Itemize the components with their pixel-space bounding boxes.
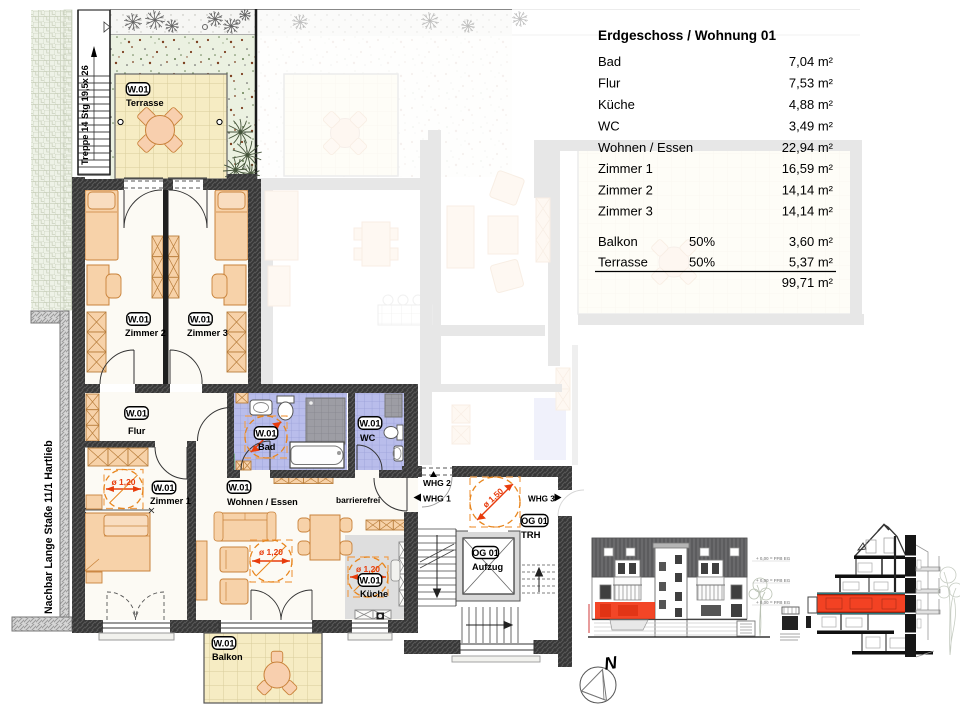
svg-text:W.01: W.01 [255,429,276,439]
svg-text:Wohnen / Essen: Wohnen / Essen [227,497,298,507]
svg-text:99,71 m²: 99,71 m² [782,275,834,290]
svg-text:7,04 m²: 7,04 m² [789,54,834,69]
svg-text:+ 0,00 = FFB EG: + 0,00 = FFB EG [756,556,791,561]
svg-text:3,49 m²: 3,49 m² [789,119,834,134]
svg-text:WHG 3: WHG 3 [528,495,555,504]
svg-text:Wohnen / Essen: Wohnen / Essen [598,140,693,155]
svg-text:7,53 m²: 7,53 m² [789,76,834,91]
svg-text:14,14 m²: 14,14 m² [782,183,834,198]
svg-text:Terrasse: Terrasse [598,255,648,270]
svg-text:W.01: W.01 [126,409,147,419]
svg-text:W.01: W.01 [359,419,380,429]
svg-text:Bad: Bad [598,54,621,69]
svg-text:WC: WC [360,433,376,443]
svg-text:3,60 m²: 3,60 m² [789,234,834,249]
svg-text:barrierefrei: barrierefrei [336,495,380,505]
svg-text:WHG 2: WHG 2 [423,478,451,488]
svg-text:Küche: Küche [360,589,388,599]
svg-text:ø 1,20: ø 1,20 [356,564,380,574]
svg-text:Treppe 14 Stg 19,5x 26: Treppe 14 Stg 19,5x 26 [80,65,90,165]
svg-text:Zimmer 3: Zimmer 3 [187,328,228,338]
svg-text:50%: 50% [689,255,715,270]
svg-text:OG 01: OG 01 [472,548,499,558]
svg-text:ø 1,20: ø 1,20 [259,547,283,557]
svg-text:Zimmer 2: Zimmer 2 [125,328,166,338]
svg-text:Zimmer 1: Zimmer 1 [598,161,653,176]
svg-text:WC: WC [598,119,620,134]
svg-text:16,59 m²: 16,59 m² [782,161,834,176]
svg-text:Erdgeschoss / Wohnung 01: Erdgeschoss / Wohnung 01 [598,28,776,43]
svg-text:Bad: Bad [258,442,275,452]
svg-text:TRH: TRH [521,530,541,541]
svg-text:W.01: W.01 [213,639,234,649]
svg-text:5,37 m²: 5,37 m² [789,255,834,270]
svg-text:OG 01: OG 01 [521,516,548,526]
svg-text:W.01: W.01 [127,85,148,95]
svg-text:W.01: W.01 [128,315,149,325]
svg-text:Küche: Küche [598,97,635,112]
svg-text:14,14 m²: 14,14 m² [782,204,834,219]
svg-text:Terrasse: Terrasse [126,98,164,108]
svg-text:W.01: W.01 [228,483,249,493]
svg-text:Balkon: Balkon [598,234,638,249]
svg-text:Flur: Flur [128,426,146,436]
svg-text:4,88 m²: 4,88 m² [789,97,834,112]
svg-text:22,94 m²: 22,94 m² [782,140,834,155]
svg-text:50%: 50% [689,234,715,249]
svg-text:Zimmer 3: Zimmer 3 [598,204,653,219]
svg-text:Zimmer 1: Zimmer 1 [150,496,191,506]
svg-text:Zimmer 2: Zimmer 2 [598,183,653,198]
svg-text:+ 0,00 = FFB EG: + 0,00 = FFB EG [756,600,791,605]
svg-text:Nachbar Lange Staße 11/1 Hart: Nachbar Lange Staße 11/1 Hartlieb [43,440,55,614]
svg-text:+ 0,00 = FFB EG: + 0,00 = FFB EG [756,578,791,583]
svg-text:W.01: W.01 [153,483,174,493]
svg-text:WHG 1: WHG 1 [423,494,451,504]
svg-text:ø 1,20: ø 1,20 [111,477,135,487]
svg-text:Flur: Flur [598,76,621,91]
svg-text:Aufzug: Aufzug [472,562,503,572]
svg-text:Balkon: Balkon [212,652,243,662]
svg-text:W.01: W.01 [359,576,380,586]
svg-text:W.01: W.01 [190,315,211,325]
